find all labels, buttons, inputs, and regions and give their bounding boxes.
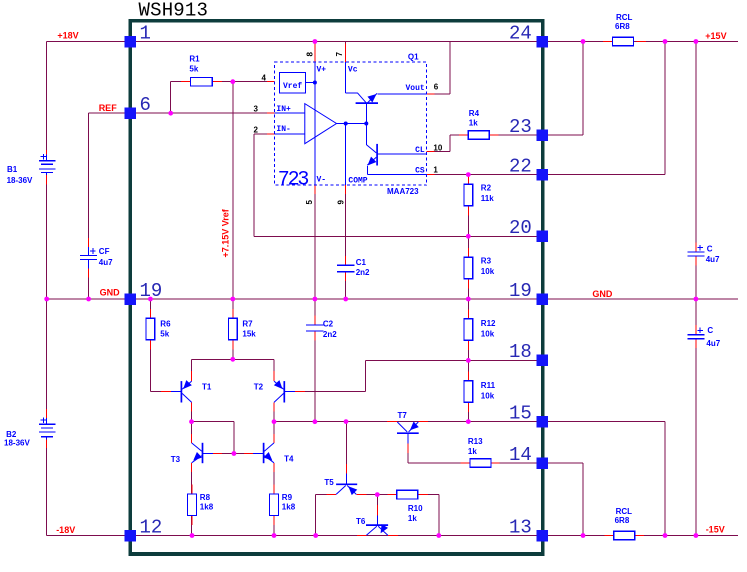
svg-text:18-36V: 18-36V — [7, 176, 33, 185]
svg-text:3: 3 — [254, 105, 259, 114]
svg-text:5: 5 — [305, 200, 314, 205]
svg-text:R3: R3 — [481, 256, 492, 265]
svg-text:13: 13 — [509, 516, 532, 538]
svg-text:9: 9 — [336, 200, 345, 205]
svg-text:6R8: 6R8 — [615, 22, 630, 31]
svg-text:R1: R1 — [189, 55, 200, 64]
svg-text:IN-: IN- — [276, 125, 290, 134]
svg-text:RCL: RCL — [616, 13, 633, 22]
svg-text:T7: T7 — [398, 411, 408, 420]
svg-text:1: 1 — [433, 165, 438, 174]
svg-text:T1: T1 — [202, 382, 212, 391]
svg-text:5k: 5k — [160, 329, 169, 338]
svg-text:RCL: RCL — [616, 507, 633, 516]
svg-text:7: 7 — [335, 52, 344, 57]
svg-text:R2: R2 — [481, 184, 492, 193]
svg-text:4: 4 — [262, 74, 267, 83]
svg-text:C1: C1 — [356, 258, 367, 267]
svg-text:V-: V- — [317, 176, 327, 185]
svg-text:14: 14 — [509, 444, 532, 466]
svg-text:1k: 1k — [408, 514, 417, 523]
svg-text:CS: CS — [415, 166, 425, 175]
svg-text:18: 18 — [509, 341, 532, 363]
svg-text:R4: R4 — [469, 109, 480, 118]
svg-text:C2: C2 — [323, 319, 334, 328]
svg-text:Vout: Vout — [405, 84, 424, 93]
svg-text:15k: 15k — [242, 329, 256, 338]
svg-text:T3: T3 — [171, 455, 181, 464]
svg-text:12: 12 — [140, 516, 163, 538]
svg-text:COMP: COMP — [348, 177, 367, 186]
svg-text:V+: V+ — [317, 66, 327, 75]
svg-text:R12: R12 — [481, 319, 496, 328]
svg-text:+15V: +15V — [705, 31, 726, 41]
svg-text:6: 6 — [434, 83, 439, 92]
svg-text:19: 19 — [509, 280, 532, 302]
svg-text:CF: CF — [99, 247, 110, 256]
svg-text:4u7: 4u7 — [706, 339, 720, 348]
svg-text:MAA723: MAA723 — [387, 187, 419, 196]
svg-text:2: 2 — [254, 125, 259, 134]
svg-text:1k: 1k — [468, 447, 477, 456]
svg-text:C: C — [707, 326, 713, 335]
svg-text:18-36V: 18-36V — [4, 439, 30, 448]
svg-text:6R8: 6R8 — [615, 516, 630, 525]
svg-text:REF: REF — [99, 103, 118, 113]
svg-text:R9: R9 — [282, 493, 293, 502]
svg-text:1k8: 1k8 — [282, 503, 296, 512]
svg-text:-15V: -15V — [706, 524, 725, 534]
svg-text:10: 10 — [433, 143, 442, 152]
svg-text:4u7: 4u7 — [99, 258, 113, 267]
svg-text:T4: T4 — [284, 455, 294, 464]
svg-text:10k: 10k — [481, 330, 495, 339]
svg-text:+7.15V Vref: +7.15V Vref — [221, 208, 231, 257]
svg-text:23: 23 — [509, 116, 532, 138]
svg-text:10k: 10k — [481, 267, 495, 276]
svg-text:R11: R11 — [481, 381, 496, 390]
svg-text:2n2: 2n2 — [323, 330, 337, 339]
svg-text:723: 723 — [278, 168, 309, 191]
svg-text:8: 8 — [306, 52, 315, 57]
svg-text:15: 15 — [509, 402, 532, 424]
svg-text:Vref: Vref — [283, 82, 302, 91]
svg-text:5k: 5k — [189, 65, 198, 74]
svg-text:WSH913: WSH913 — [139, 0, 209, 22]
svg-text:1k: 1k — [469, 119, 478, 128]
svg-text:1k8: 1k8 — [200, 503, 214, 512]
svg-text:GND: GND — [592, 289, 613, 299]
svg-text:1: 1 — [140, 22, 151, 44]
svg-text:2n2: 2n2 — [356, 268, 370, 277]
svg-text:4u7: 4u7 — [706, 255, 720, 264]
svg-text:22: 22 — [509, 155, 532, 177]
svg-text:C: C — [707, 244, 713, 253]
svg-text:R10: R10 — [408, 504, 423, 513]
svg-text:R7: R7 — [242, 320, 253, 329]
svg-text:Q1: Q1 — [408, 53, 419, 62]
svg-text:24: 24 — [509, 22, 532, 44]
svg-text:T6: T6 — [356, 517, 366, 526]
svg-text:CL: CL — [415, 146, 425, 155]
svg-text:11k: 11k — [481, 194, 494, 203]
svg-text:R13: R13 — [468, 437, 483, 446]
svg-text:IN+: IN+ — [276, 105, 291, 114]
svg-text:Vc: Vc — [348, 66, 358, 75]
svg-text:R8: R8 — [200, 493, 211, 502]
svg-text:6: 6 — [140, 94, 151, 116]
svg-text:GND: GND — [100, 287, 121, 297]
svg-text:+18V: +18V — [57, 31, 78, 41]
svg-text:20: 20 — [509, 217, 532, 239]
svg-text:T5: T5 — [324, 478, 334, 487]
svg-text:T2: T2 — [254, 382, 264, 391]
svg-text:10k: 10k — [481, 392, 495, 401]
svg-text:-18V: -18V — [56, 525, 75, 535]
svg-text:B1: B1 — [7, 165, 18, 174]
svg-text:R6: R6 — [160, 320, 171, 329]
svg-text:19: 19 — [140, 280, 163, 302]
